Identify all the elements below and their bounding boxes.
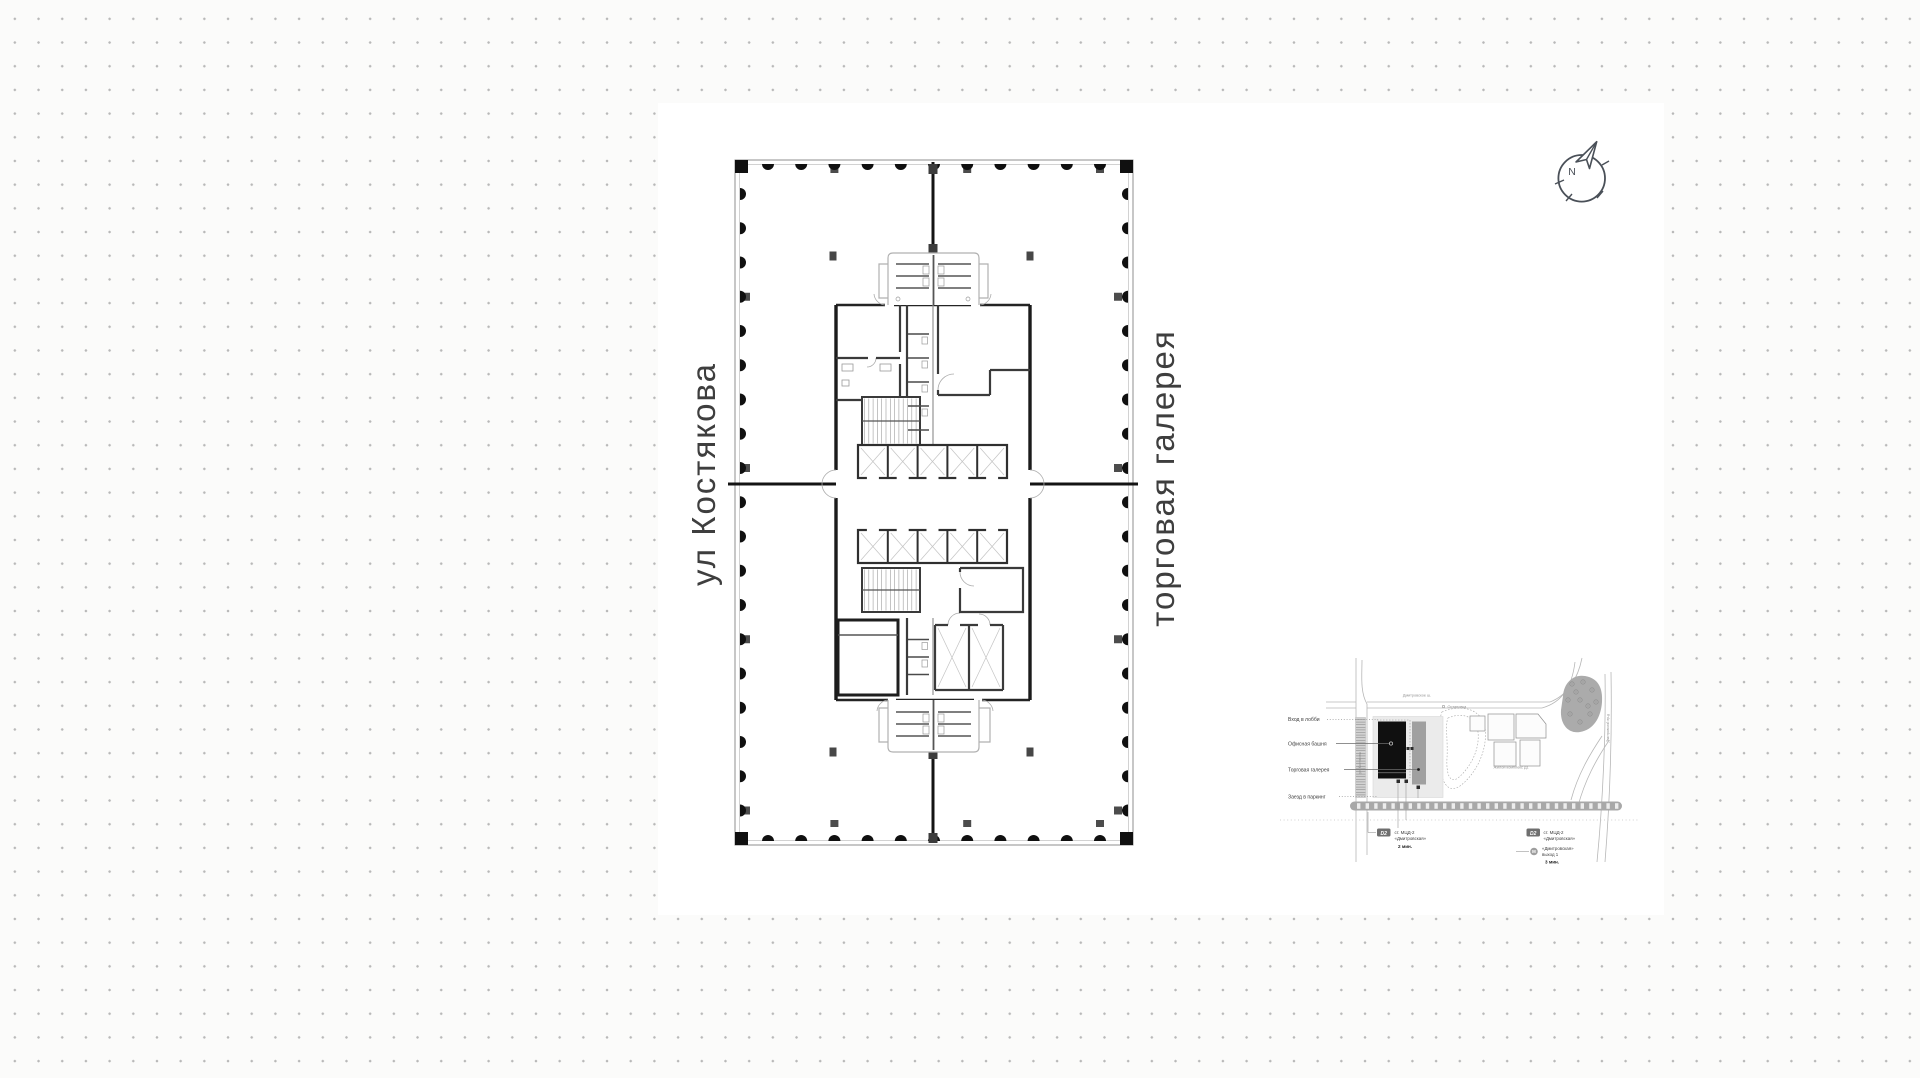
svg-text:D2: D2 xyxy=(1530,831,1537,837)
svg-text:2 мин.: 2 мин. xyxy=(1398,844,1412,849)
transit-right: D2 ст. МЦД-2 «Дмитровская» xyxy=(1527,829,1576,841)
elevator-bank-lower xyxy=(858,529,1007,564)
svg-text:ст. МЦД-2: ст. МЦД-2 xyxy=(1395,830,1415,835)
street-label-kostyakova: ул Костякова xyxy=(685,362,723,586)
svg-text:D2: D2 xyxy=(1380,831,1387,837)
svg-text:М: М xyxy=(1532,849,1536,854)
residential-label: Жилой комплекс Д1 xyxy=(1493,766,1528,770)
gallery-footprint xyxy=(1412,722,1426,785)
elevator-bank-upper xyxy=(858,445,1007,480)
svg-text:выход 1: выход 1 xyxy=(1542,852,1559,857)
wc-block-top xyxy=(879,253,988,305)
floor-plan xyxy=(728,152,1138,852)
compass-north-icon: N xyxy=(1536,120,1636,220)
transit-metro: М «Дмитровская» выход 1 3 мин. xyxy=(1530,846,1574,865)
office-tower-footprint xyxy=(1378,722,1406,779)
transit-left: D2 ст. МЦД-2 «Дмитровская» 2 мин. xyxy=(1377,829,1427,849)
site-map: Дмитровское ш. Остановка ул. Костякова Д… xyxy=(1280,650,1640,870)
svg-text:«Дмитровская»: «Дмитровская» xyxy=(1395,836,1427,841)
bus-stop-label: Остановка xyxy=(1448,705,1468,709)
tower-detail-line xyxy=(1378,772,1406,773)
street-label-left-vert: ул. Костякова xyxy=(1358,752,1362,774)
callout-office-tower: Офисная башня xyxy=(1288,742,1327,748)
north-letter: N xyxy=(1568,166,1576,178)
callout-parking: Заезд в паркинг xyxy=(1288,795,1326,801)
svg-text:«Дмитровская»: «Дмитровская» xyxy=(1542,846,1574,851)
wc-block-bottom xyxy=(879,700,990,752)
svg-text:«Дмитровская»: «Дмитровская» xyxy=(1544,836,1576,841)
svg-text:3 мин.: 3 мин. xyxy=(1545,860,1559,865)
callout-gallery: Торговая галерея xyxy=(1288,768,1330,774)
residential-buildings xyxy=(1470,714,1546,766)
svg-text:ст. МЦД-2: ст. МЦД-2 xyxy=(1544,830,1564,835)
room-bottom-left xyxy=(838,620,898,695)
stair-upper xyxy=(862,397,920,445)
stair-lower xyxy=(862,568,920,612)
bus-stop-icon xyxy=(1442,705,1444,707)
compass-ticks xyxy=(1555,161,1609,201)
callout-lobby-entrance: Вход в лобби xyxy=(1288,717,1320,723)
street-label-gallery: торговая галерея xyxy=(1144,329,1182,627)
street-label-top: Дмитровское ш. xyxy=(1403,694,1431,698)
street-label-right-vert: Дмитровский пр-д xyxy=(1606,714,1610,742)
